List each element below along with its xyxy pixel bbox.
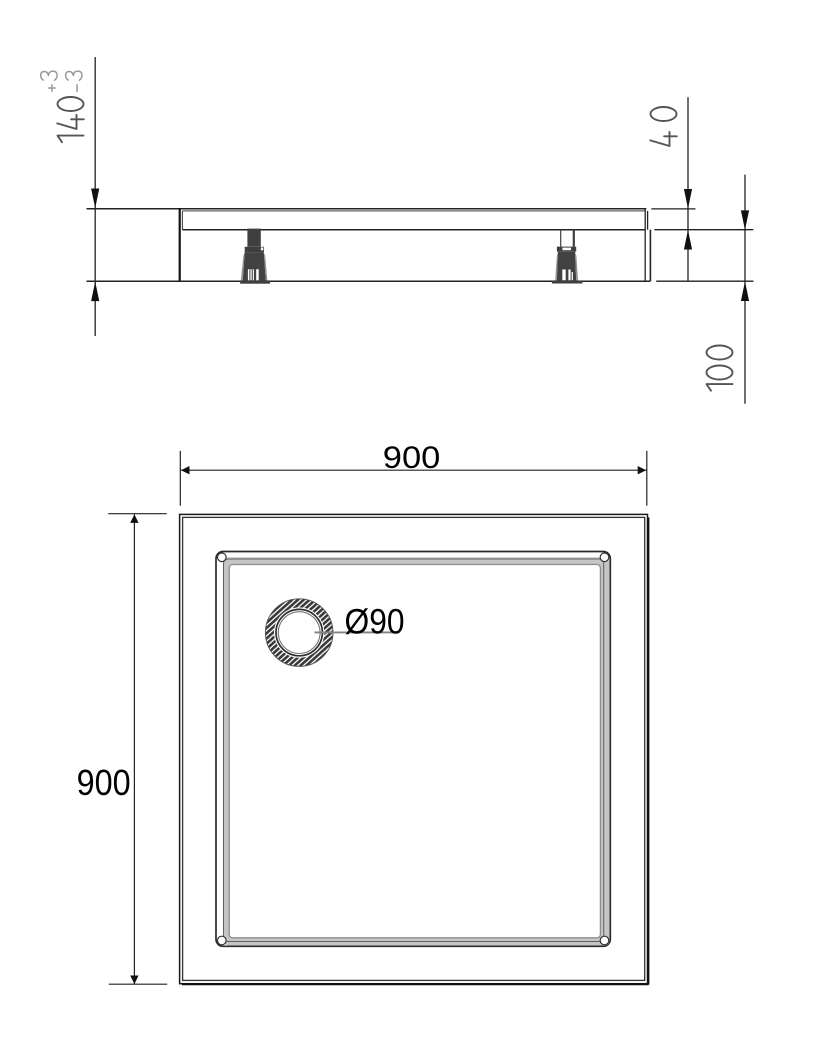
- svg-text:Ø90: Ø90: [345, 602, 405, 641]
- svg-text:900: 900: [383, 439, 441, 475]
- svg-text:900: 900: [77, 762, 131, 803]
